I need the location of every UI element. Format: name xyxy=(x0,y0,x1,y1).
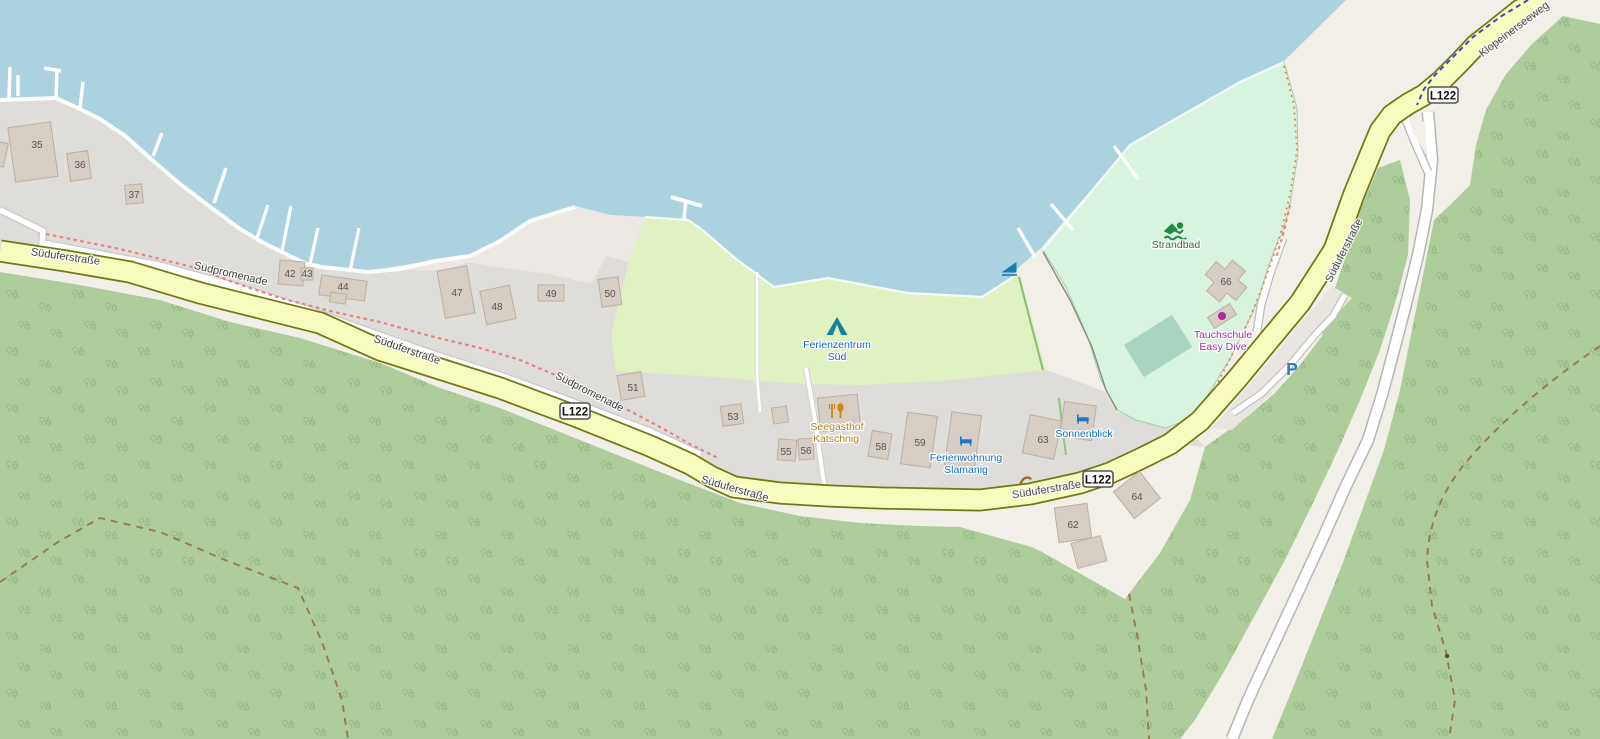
svg-text:P: P xyxy=(1286,359,1298,379)
svg-text:58: 58 xyxy=(875,442,887,453)
svg-text:43: 43 xyxy=(301,269,313,280)
svg-text:56: 56 xyxy=(800,446,812,457)
svg-text:Katschnig: Katschnig xyxy=(813,433,859,445)
svg-text:49: 49 xyxy=(545,289,557,300)
svg-text:48: 48 xyxy=(491,302,503,313)
svg-text:47: 47 xyxy=(451,288,463,299)
svg-text:59: 59 xyxy=(914,438,926,449)
svg-text:66: 66 xyxy=(1220,277,1232,288)
svg-text:Tauchschule: Tauchschule xyxy=(1194,329,1253,341)
svg-text:35: 35 xyxy=(31,140,43,151)
svg-text:50: 50 xyxy=(604,289,616,300)
svg-text:Easy Dive: Easy Dive xyxy=(1199,341,1246,353)
svg-text:51: 51 xyxy=(627,383,639,394)
svg-text:L122: L122 xyxy=(1430,91,1456,103)
svg-text:Seegasthof: Seegasthof xyxy=(810,421,863,433)
svg-text:64: 64 xyxy=(1131,492,1143,503)
svg-text:L122: L122 xyxy=(562,407,588,419)
svg-text:42: 42 xyxy=(284,269,296,280)
svg-text:Süd: Süd xyxy=(828,351,847,363)
svg-text:36: 36 xyxy=(74,160,86,171)
svg-text:Ferienzentrum: Ferienzentrum xyxy=(803,339,871,351)
svg-text:Ferienwohnung: Ferienwohnung xyxy=(930,452,1003,464)
svg-text:37: 37 xyxy=(128,190,140,201)
svg-text:63: 63 xyxy=(1037,435,1049,446)
svg-text:Sonnenblick: Sonnenblick xyxy=(1055,428,1113,440)
svg-text:62: 62 xyxy=(1067,520,1079,531)
svg-text:Slamanig: Slamanig xyxy=(944,464,988,476)
svg-text:55: 55 xyxy=(780,447,792,458)
svg-text:Strandbad: Strandbad xyxy=(1152,239,1201,251)
svg-text:44: 44 xyxy=(337,282,349,293)
svg-text:L122: L122 xyxy=(1085,475,1111,487)
svg-text:53: 53 xyxy=(727,412,739,423)
